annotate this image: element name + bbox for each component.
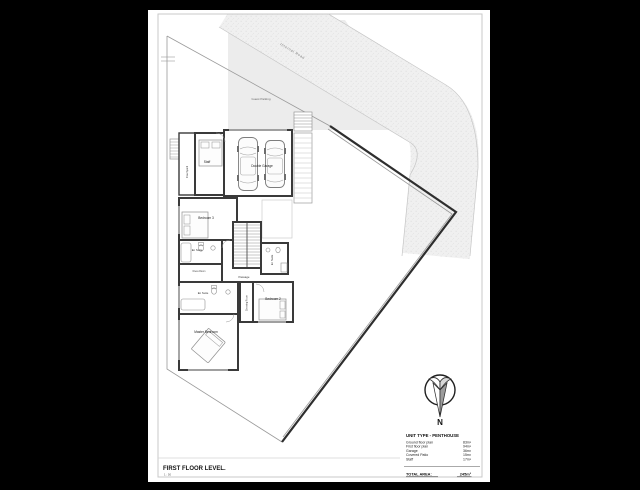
area-row-label: Staff	[406, 457, 413, 461]
bedroom-2-label: Bedroom 2	[265, 297, 281, 301]
sheet-scale: 1 : 50	[164, 473, 171, 477]
bedroom-3-label: Bedroom 3	[198, 216, 214, 220]
ensuite-right-label: En Suite	[270, 254, 274, 265]
staff-label: Staff	[204, 160, 211, 164]
drawing-canvas: Internal Road Guest Parking	[0, 0, 640, 490]
room-ensuite-master	[179, 282, 238, 314]
master-bedroom-label: Master Bedroom	[194, 330, 218, 334]
total-area-value: 245m²	[460, 472, 472, 477]
room-dress	[179, 264, 222, 282]
courtyard-label: Courtyard	[185, 165, 189, 178]
ensuite-master-label: En Suite	[198, 291, 209, 295]
entry-steps	[294, 112, 312, 131]
total-area-label: TOTAL AREA:	[406, 472, 432, 477]
north-label: N	[437, 418, 443, 427]
double-garage-label: Double Garage	[251, 164, 273, 168]
area-row-value: 17m²	[463, 457, 472, 461]
room-ensuite-bed3	[179, 240, 222, 264]
guest-parking-label: Guest Parking	[251, 97, 270, 101]
covered-patio-pergola	[294, 133, 312, 203]
bed-icon	[259, 299, 286, 320]
ensuite-label: En Suite	[192, 248, 203, 252]
floor-plan-sheet: Internal Road Guest Parking	[0, 0, 640, 490]
room-courtyard	[179, 133, 195, 195]
dress-room-label: Dress Room	[193, 270, 206, 273]
sheet-title: FIRST FLOOR LEVEL.	[163, 466, 226, 472]
unit-type-heading: UNIT TYPE - PENTHOUSE	[406, 433, 459, 438]
bed-icon	[199, 140, 222, 166]
room-ensuite-right	[261, 243, 288, 274]
passage-label: Passage	[239, 275, 250, 279]
dressing-room-label: Dressing Room	[246, 295, 249, 311]
